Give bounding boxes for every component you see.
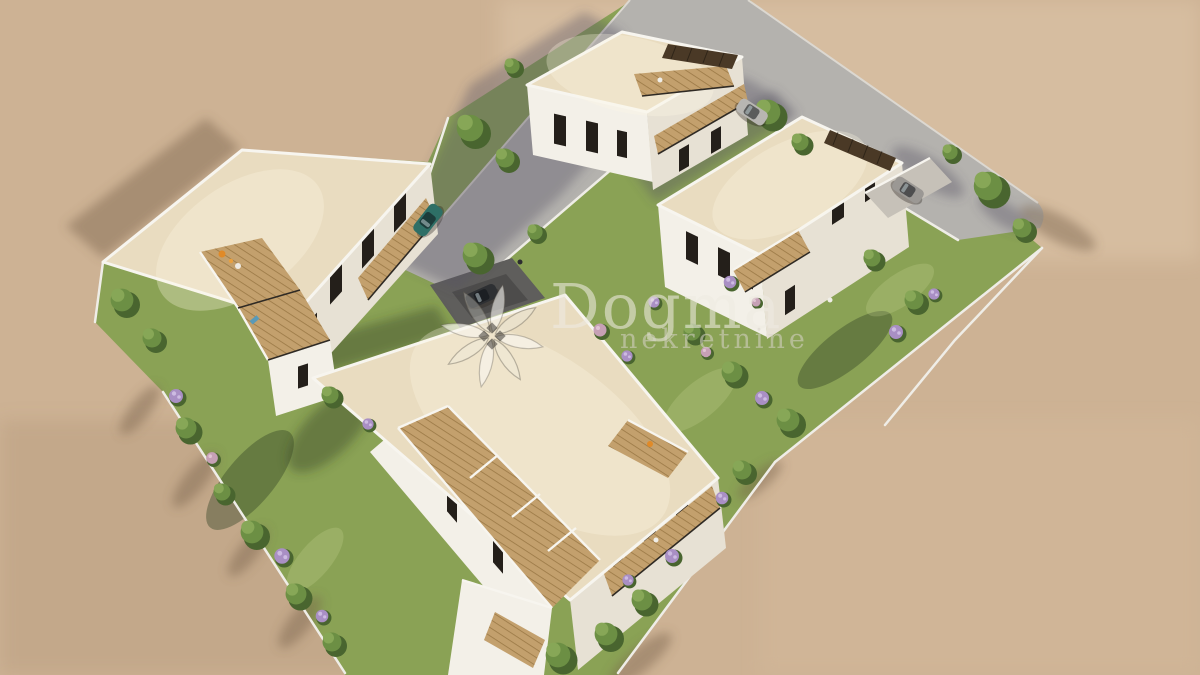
terrace-table [235, 263, 241, 269]
aerial-rendering: Dogma nekretnine [0, 0, 1200, 675]
orange-parasol [219, 251, 226, 258]
person-figure [828, 298, 833, 303]
rendering-canvas: Dogma nekretnine [0, 0, 1200, 675]
person-figure [658, 78, 663, 83]
watermark-subtitle-text: nekretnine [620, 324, 809, 355]
orange-parasol [647, 441, 653, 447]
person-figure [654, 538, 659, 543]
person-figure [518, 260, 523, 265]
